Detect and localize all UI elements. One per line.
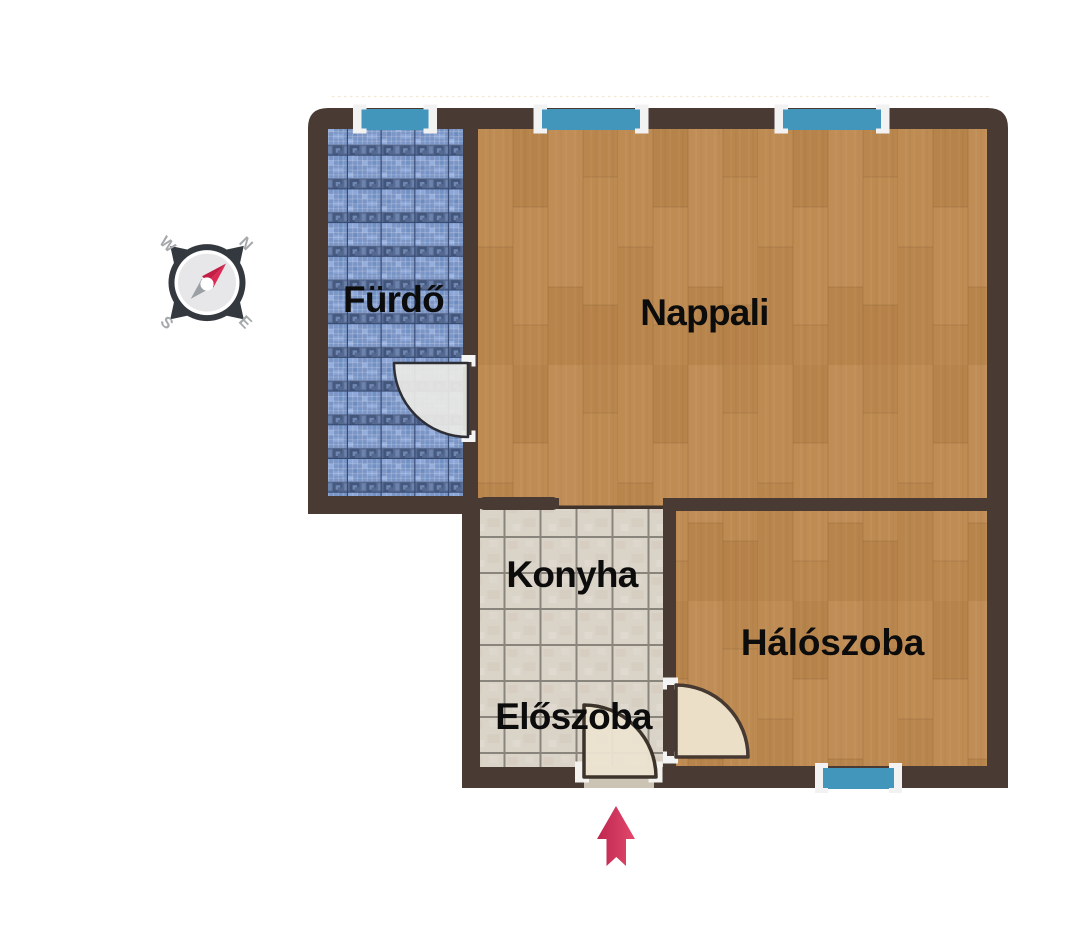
svg-text:Konyha: Konyha (506, 554, 638, 595)
svg-text:Előszoba: Előszoba (495, 696, 653, 737)
svg-text:Nappali: Nappali (640, 292, 768, 333)
svg-text:Fürdő: Fürdő (343, 279, 444, 320)
svg-text:Hálószoba: Hálószoba (741, 622, 925, 663)
